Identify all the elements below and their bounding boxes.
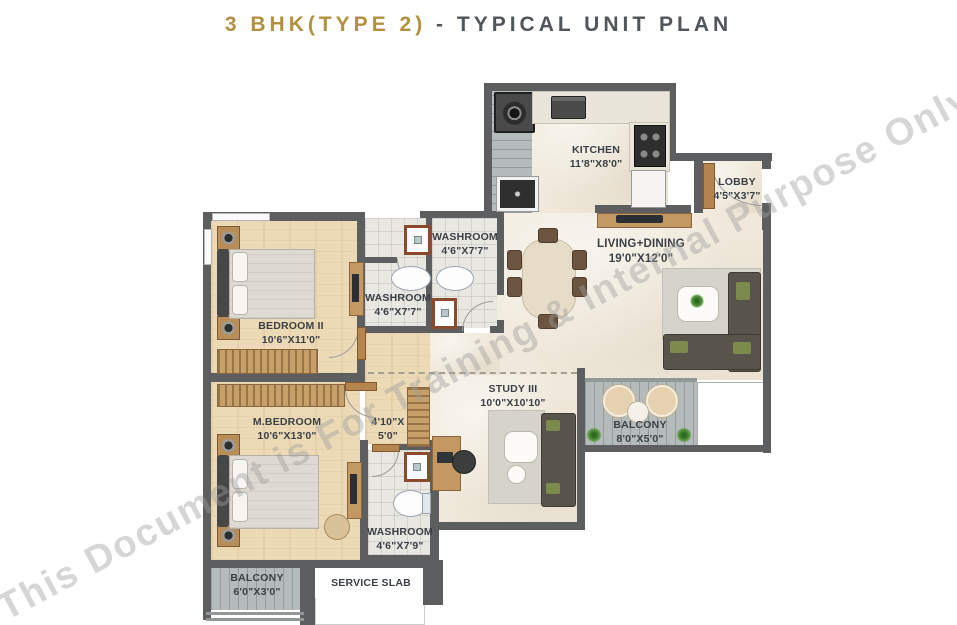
nightstand-lamp-icon	[217, 316, 240, 340]
room-name: WASHROOM	[365, 292, 431, 306]
dining-chair-icon	[538, 228, 558, 243]
desk-chair-icon	[452, 450, 476, 474]
floor-plan-page: 3 BHK(TYPE 2) - TYPICAL UNIT PLAN	[0, 0, 957, 625]
passage-label: 4'10"X 5'0"	[371, 416, 404, 443]
room-dims: 19'0"X12'0"	[597, 252, 685, 267]
room-dims: 4'5"X3'7"	[713, 190, 760, 204]
washbasin-icon	[404, 452, 430, 482]
cushion-icon	[546, 420, 560, 431]
room-name: M.BEDROOM	[253, 416, 321, 430]
duct-void	[697, 382, 765, 447]
dining-chair-icon	[572, 250, 587, 270]
wall	[763, 229, 771, 453]
title-rest: - TYPICAL UNIT PLAN	[426, 13, 732, 36]
plant-icon	[676, 428, 692, 442]
room-dims: 11'8"X8'0"	[570, 158, 623, 172]
room-dims: 10'6"X13'0"	[253, 430, 321, 444]
pillow-icon	[232, 252, 248, 282]
bedroom-ii-label: BEDROOM II 10'6"X11'0"	[258, 320, 324, 347]
wall	[762, 153, 771, 169]
dining-chair-icon	[507, 277, 522, 297]
window	[212, 213, 270, 221]
living-dining-label: LIVING+DINING 19'0"X12'0"	[597, 237, 685, 267]
dining-chair-icon	[507, 250, 522, 270]
wall	[484, 83, 492, 215]
wall	[676, 153, 772, 161]
m-bedroom-label: M.BEDROOM 10'6"X13'0"	[253, 416, 321, 443]
washroom-top-label: WASHROOM 4'6"X7'7"	[432, 231, 498, 258]
toilet-tank	[422, 493, 431, 514]
cushion-icon	[546, 483, 560, 494]
room-name: WASHROOM	[367, 526, 433, 540]
nightstand-lamp-icon	[217, 434, 240, 457]
wall	[423, 560, 443, 605]
wall	[203, 382, 211, 568]
side-table-icon	[507, 465, 526, 484]
door-leaf	[345, 382, 377, 391]
washroom-mid-label: WASHROOM 4'6"X7'7"	[365, 292, 431, 319]
door-leaf	[372, 444, 400, 452]
service-slab-label: SERVICE SLAB	[331, 577, 411, 591]
room-name: LOBBY	[713, 176, 760, 190]
room-dims: 4'6"X7'7"	[365, 306, 431, 320]
kitchen-label: KITCHEN 11'8"X8'0"	[570, 144, 623, 171]
cushion-icon	[736, 282, 750, 300]
wardrobe-icon	[217, 349, 318, 374]
balcony-living-label: BALCONY 8'0"X5'0"	[613, 419, 666, 446]
dining-chair-icon	[538, 314, 558, 329]
room-dims: 10'0"X10'10"	[480, 397, 545, 411]
pillow-icon	[232, 492, 248, 522]
washbasin-icon	[432, 298, 457, 329]
pillow-icon	[232, 285, 248, 315]
room-name: KITCHEN	[570, 144, 623, 158]
wardrobe-icon	[407, 387, 430, 447]
wall	[430, 522, 585, 530]
door-leaf	[357, 327, 366, 360]
wall	[694, 153, 703, 213]
washing-machine-icon	[494, 92, 535, 133]
microwave-icon	[551, 96, 586, 119]
open-boundary-dashed-line	[368, 372, 577, 376]
balcony-rail	[206, 612, 304, 615]
nightstand-lamp-icon	[217, 226, 240, 250]
stove-icon	[634, 125, 666, 167]
bed-headboard-icon	[217, 455, 229, 527]
room-dims: 8'0"X5'0"	[613, 433, 666, 447]
washroom-master-label: WASHROOM 4'6"X7'9"	[367, 526, 433, 553]
laptop-icon	[437, 452, 453, 463]
wall	[300, 560, 315, 625]
washbasin-icon	[404, 225, 431, 255]
wall	[203, 560, 315, 568]
room-name: BALCONY	[613, 419, 666, 433]
dining-chair-icon	[572, 277, 587, 297]
balcony-chair-icon	[646, 385, 678, 417]
bed-headboard-icon	[217, 249, 229, 317]
room-dims: 10'6"X11'0"	[258, 334, 324, 348]
plant-icon	[586, 428, 602, 442]
wall	[420, 211, 504, 218]
balcony-rail	[585, 378, 697, 382]
coffee-table-icon	[504, 431, 538, 463]
room-name: LIVING+DINING	[597, 237, 685, 252]
pillow-icon	[232, 459, 248, 489]
room-name: SERVICE SLAB	[331, 577, 411, 591]
title-accent: 3 BHK(TYPE 2)	[225, 13, 426, 36]
toilet-icon	[391, 266, 431, 291]
service-slab-extension	[315, 598, 425, 625]
room-dims: 6'0"X3'0"	[230, 586, 283, 600]
cushion-icon	[733, 342, 751, 354]
fridge-icon	[631, 170, 666, 208]
lobby-label: LOBBY 4'5"X3'7"	[713, 176, 760, 203]
room-name: WASHROOM	[432, 231, 498, 245]
cushion-icon	[670, 341, 688, 353]
wall	[365, 257, 397, 263]
wall	[762, 203, 771, 230]
dresser-handle	[352, 274, 359, 302]
balcony-rail	[206, 618, 304, 621]
dining-table-icon	[522, 239, 576, 319]
wall	[313, 560, 425, 568]
room-dims: 4'6"X7'9"	[367, 540, 433, 554]
page-title: 3 BHK(TYPE 2) - TYPICAL UNIT PLAN	[0, 13, 957, 37]
window	[204, 229, 212, 265]
wall	[580, 445, 771, 452]
room-name: 4'10"X	[371, 416, 404, 430]
wardrobe-icon	[217, 384, 345, 407]
room-name: BALCONY	[230, 572, 283, 586]
room-name: BEDROOM II	[258, 320, 324, 334]
plant-icon	[690, 294, 704, 308]
wall	[484, 83, 676, 91]
study-label: STUDY III 10'0"X10'10"	[480, 383, 545, 410]
balcony-bedroom-label: BALCONY 6'0"X3'0"	[230, 572, 283, 599]
room-dims: 4'6"X7'7"	[432, 245, 498, 259]
room-name: STUDY III	[480, 383, 545, 397]
wall	[497, 211, 504, 295]
toilet-icon	[436, 266, 474, 291]
wall	[203, 373, 365, 382]
dresser-handle	[350, 474, 357, 504]
tv-icon	[616, 215, 663, 223]
utility-sink-icon	[497, 177, 538, 211]
room-dims: 5'0"	[371, 430, 404, 444]
